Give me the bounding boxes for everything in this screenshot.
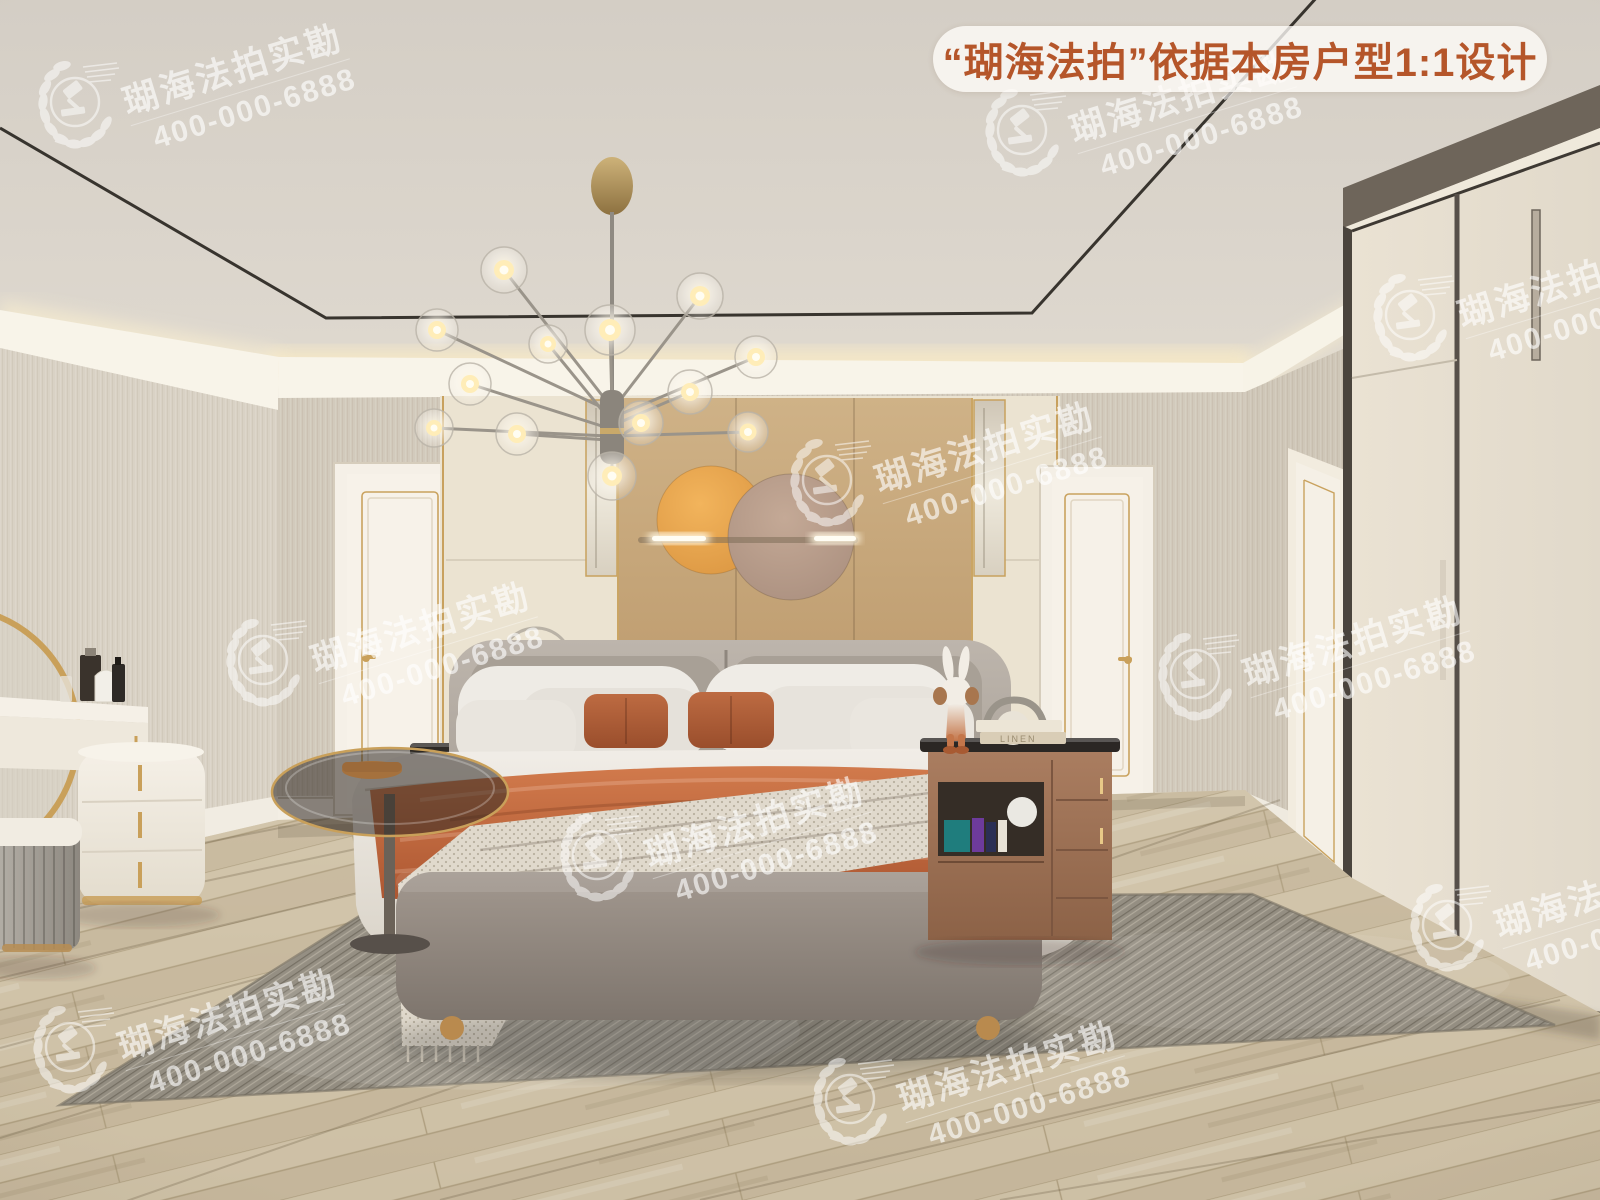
shelf-ornament bbox=[1007, 797, 1037, 827]
design-claim-banner: “瑚海法拍”依据本房户型1:1设计 bbox=[933, 26, 1547, 92]
wardrobe bbox=[1343, 142, 1600, 1013]
book-stack: LINEN bbox=[976, 720, 1066, 744]
book-spine-label: LINEN bbox=[1000, 734, 1037, 744]
wardrobe-handle-groove bbox=[1532, 210, 1540, 360]
auction-room-photo: LINEN 瑚海法拍实勘 400-000-6888 bbox=[0, 0, 1600, 1200]
banner-text: “瑚海法拍”依据本房户型1:1设计 bbox=[943, 30, 1538, 88]
mirror-strip-right bbox=[974, 400, 1005, 576]
bedroom-render: LINEN bbox=[0, 0, 1600, 1200]
bed-foot bbox=[976, 1016, 1000, 1040]
bed-foot bbox=[440, 1016, 464, 1040]
